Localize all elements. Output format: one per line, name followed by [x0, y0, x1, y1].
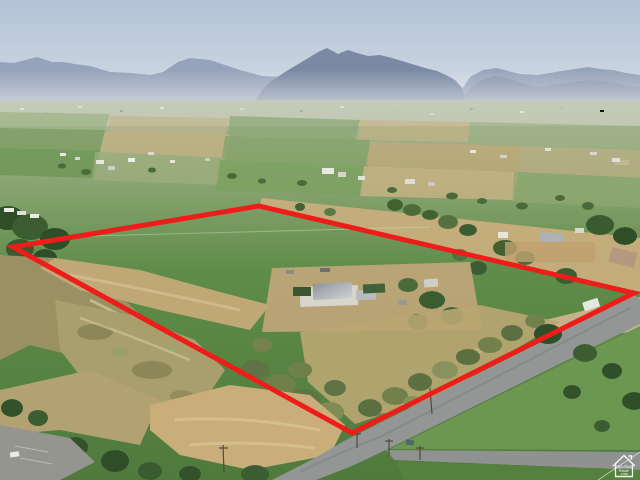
watermark-line-3: .com	[620, 472, 628, 476]
aerial-property-photo: Utah Real Estate .com	[0, 0, 640, 480]
